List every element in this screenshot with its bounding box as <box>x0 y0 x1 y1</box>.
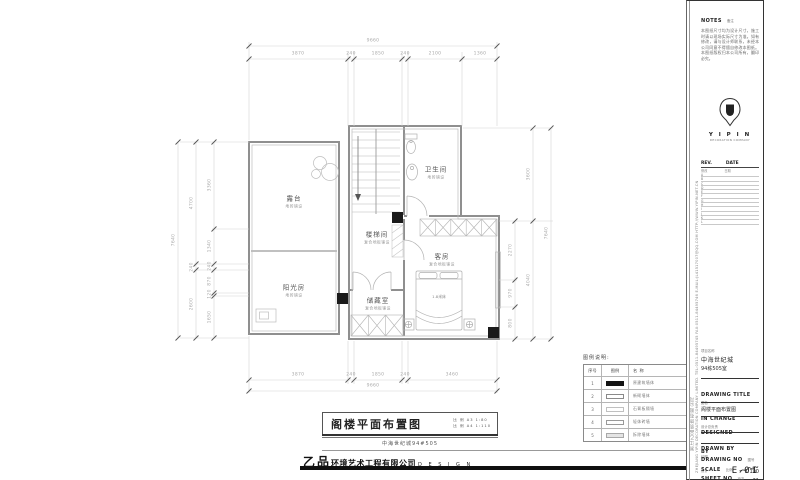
yipin-logo: Y I P I N DECORATION COMPANY <box>701 97 759 142</box>
legend-header: 序号 图例 名 称 <box>584 365 686 376</box>
dim-left-mid: 240 <box>190 262 195 272</box>
drawing-sheet: 露台地砖铺设 阳光房地砖铺设 楼梯间复合地板铺设 卫生间地砖铺设 客房复合地板铺… <box>0 0 800 480</box>
dim-top-overall: 9660 <box>367 39 380 44</box>
notes-section: NOTES 备注 本图纸尺寸均为设计尺寸，施工时请以现场实际尺寸为准。如有修改，… <box>701 7 759 62</box>
dim-bottom: 240 <box>400 373 410 378</box>
legend-row: 4 轻体砖墙 <box>584 415 686 428</box>
scale-notes: 比 例 A3 1:80 比 例 A4 1:110 <box>445 418 491 429</box>
room-label-stairwell: 楼梯间复合地板铺设 <box>364 229 390 246</box>
dim-left-inner: 1650 <box>208 311 213 324</box>
dim-top: 3870 <box>292 52 305 57</box>
room-label-sunroom: 阳光房地砖铺设 <box>283 282 306 299</box>
room-label-bathroom: 卫生间地砖铺设 <box>425 164 448 181</box>
revision-table: REV.DATE 修改日期 A B C D E F G H I J K L <box>701 161 759 225</box>
dim-bottom: 3460 <box>446 373 459 378</box>
legend-swatch-gray <box>606 433 624 438</box>
dim-top: 1360 <box>474 52 487 57</box>
legend-row: 3 石膏板隔墙 <box>584 402 686 415</box>
dim-top: 240 <box>346 52 356 57</box>
room-label-terrace: 露台地砖铺设 <box>285 193 302 210</box>
room-label-guestroom: 客房复合地板铺设 <box>429 251 455 268</box>
dim-left-mid: 2600 <box>190 298 195 311</box>
sheet-no-section: SHEET NO 页次 21 <box>701 465 759 480</box>
legend-row: 2 新砌墙体 <box>584 389 686 402</box>
dim-left-inner: 3360 <box>208 179 213 192</box>
dim-left-inner: 870 <box>208 276 213 286</box>
legend-swatch-dots <box>606 420 624 425</box>
drawing-title-bar: 阁楼平面布置图 比 例 A3 1:80 比 例 A4 1:110 中海世纪城94… <box>322 412 498 447</box>
legend: 图例说明: 序号 图例 名 称 1 原建筑墙体 2 新砌墙体 3 石膏板隔墙 <box>583 354 687 442</box>
project-subtitle: 中海世纪城94#505 <box>322 440 498 447</box>
dim-right-inner: 800 <box>509 318 514 328</box>
dim-right-inner: 970 <box>509 288 514 298</box>
dim-left-mid: 4700 <box>190 197 195 210</box>
dim-top: 240 <box>400 52 410 57</box>
legend-swatch-light <box>606 407 624 412</box>
strip-border-line <box>689 1 690 480</box>
dim-right-mid: 3600 <box>527 168 532 181</box>
dim-top: 1850 <box>372 52 385 57</box>
legend-swatch-outline <box>606 394 624 399</box>
company-contact-vertical: ZHEJIANG YIPIN DECORATION COMPANY LIMITE… <box>695 7 699 473</box>
legend-row: 1 原建筑墙体 <box>584 376 686 389</box>
bed-label: 1.8米床 <box>432 294 446 300</box>
legend-swatch-solid <box>606 381 624 386</box>
room-label-storage: 储藏室复合地板铺设 <box>365 295 391 312</box>
dim-right-mid: 4040 <box>527 274 532 287</box>
footer-line <box>322 450 686 451</box>
rev-row: L <box>701 220 759 224</box>
project-name: 中海世纪城 <box>701 355 759 364</box>
project-info: 项目名称 中海世纪城 94栋505室 <box>701 348 759 372</box>
title-rule <box>322 434 498 436</box>
drawing-title-text: 阁楼平面布置图 <box>331 416 422 432</box>
dim-bottom-overall: 9660 <box>367 384 380 389</box>
notes-body: 本图纸尺寸均为设计尺寸，施工时请以现场实际尺寸为准。如有修改，请与设计师联系，未… <box>701 28 759 62</box>
dim-bottom: 1850 <box>372 373 385 378</box>
project-room: 94栋505室 <box>701 365 759 372</box>
dim-right-inner: 2270 <box>509 244 514 257</box>
dim-left-inner: 120 <box>208 289 213 299</box>
dim-left-inner: 240 <box>208 261 213 271</box>
pin-logo-icon <box>718 97 742 127</box>
legend-title: 图例说明: <box>583 354 687 361</box>
dim-bottom: 240 <box>346 373 356 378</box>
dim-bottom: 3870 <box>292 373 305 378</box>
dim-left-inner: 1340 <box>208 240 213 253</box>
dim-left-outer: 7640 <box>172 234 177 247</box>
title-block: 浙江乙品装饰有限公司 ZHEJIANG YIPIN DECORATION COM… <box>686 0 764 480</box>
legend-row: 5 拆除墙体 <box>584 428 686 441</box>
title-rule <box>322 437 498 438</box>
dim-right-outer: 7640 <box>545 227 550 240</box>
dim-top: 2100 <box>429 52 442 57</box>
footer-bar <box>300 466 686 470</box>
